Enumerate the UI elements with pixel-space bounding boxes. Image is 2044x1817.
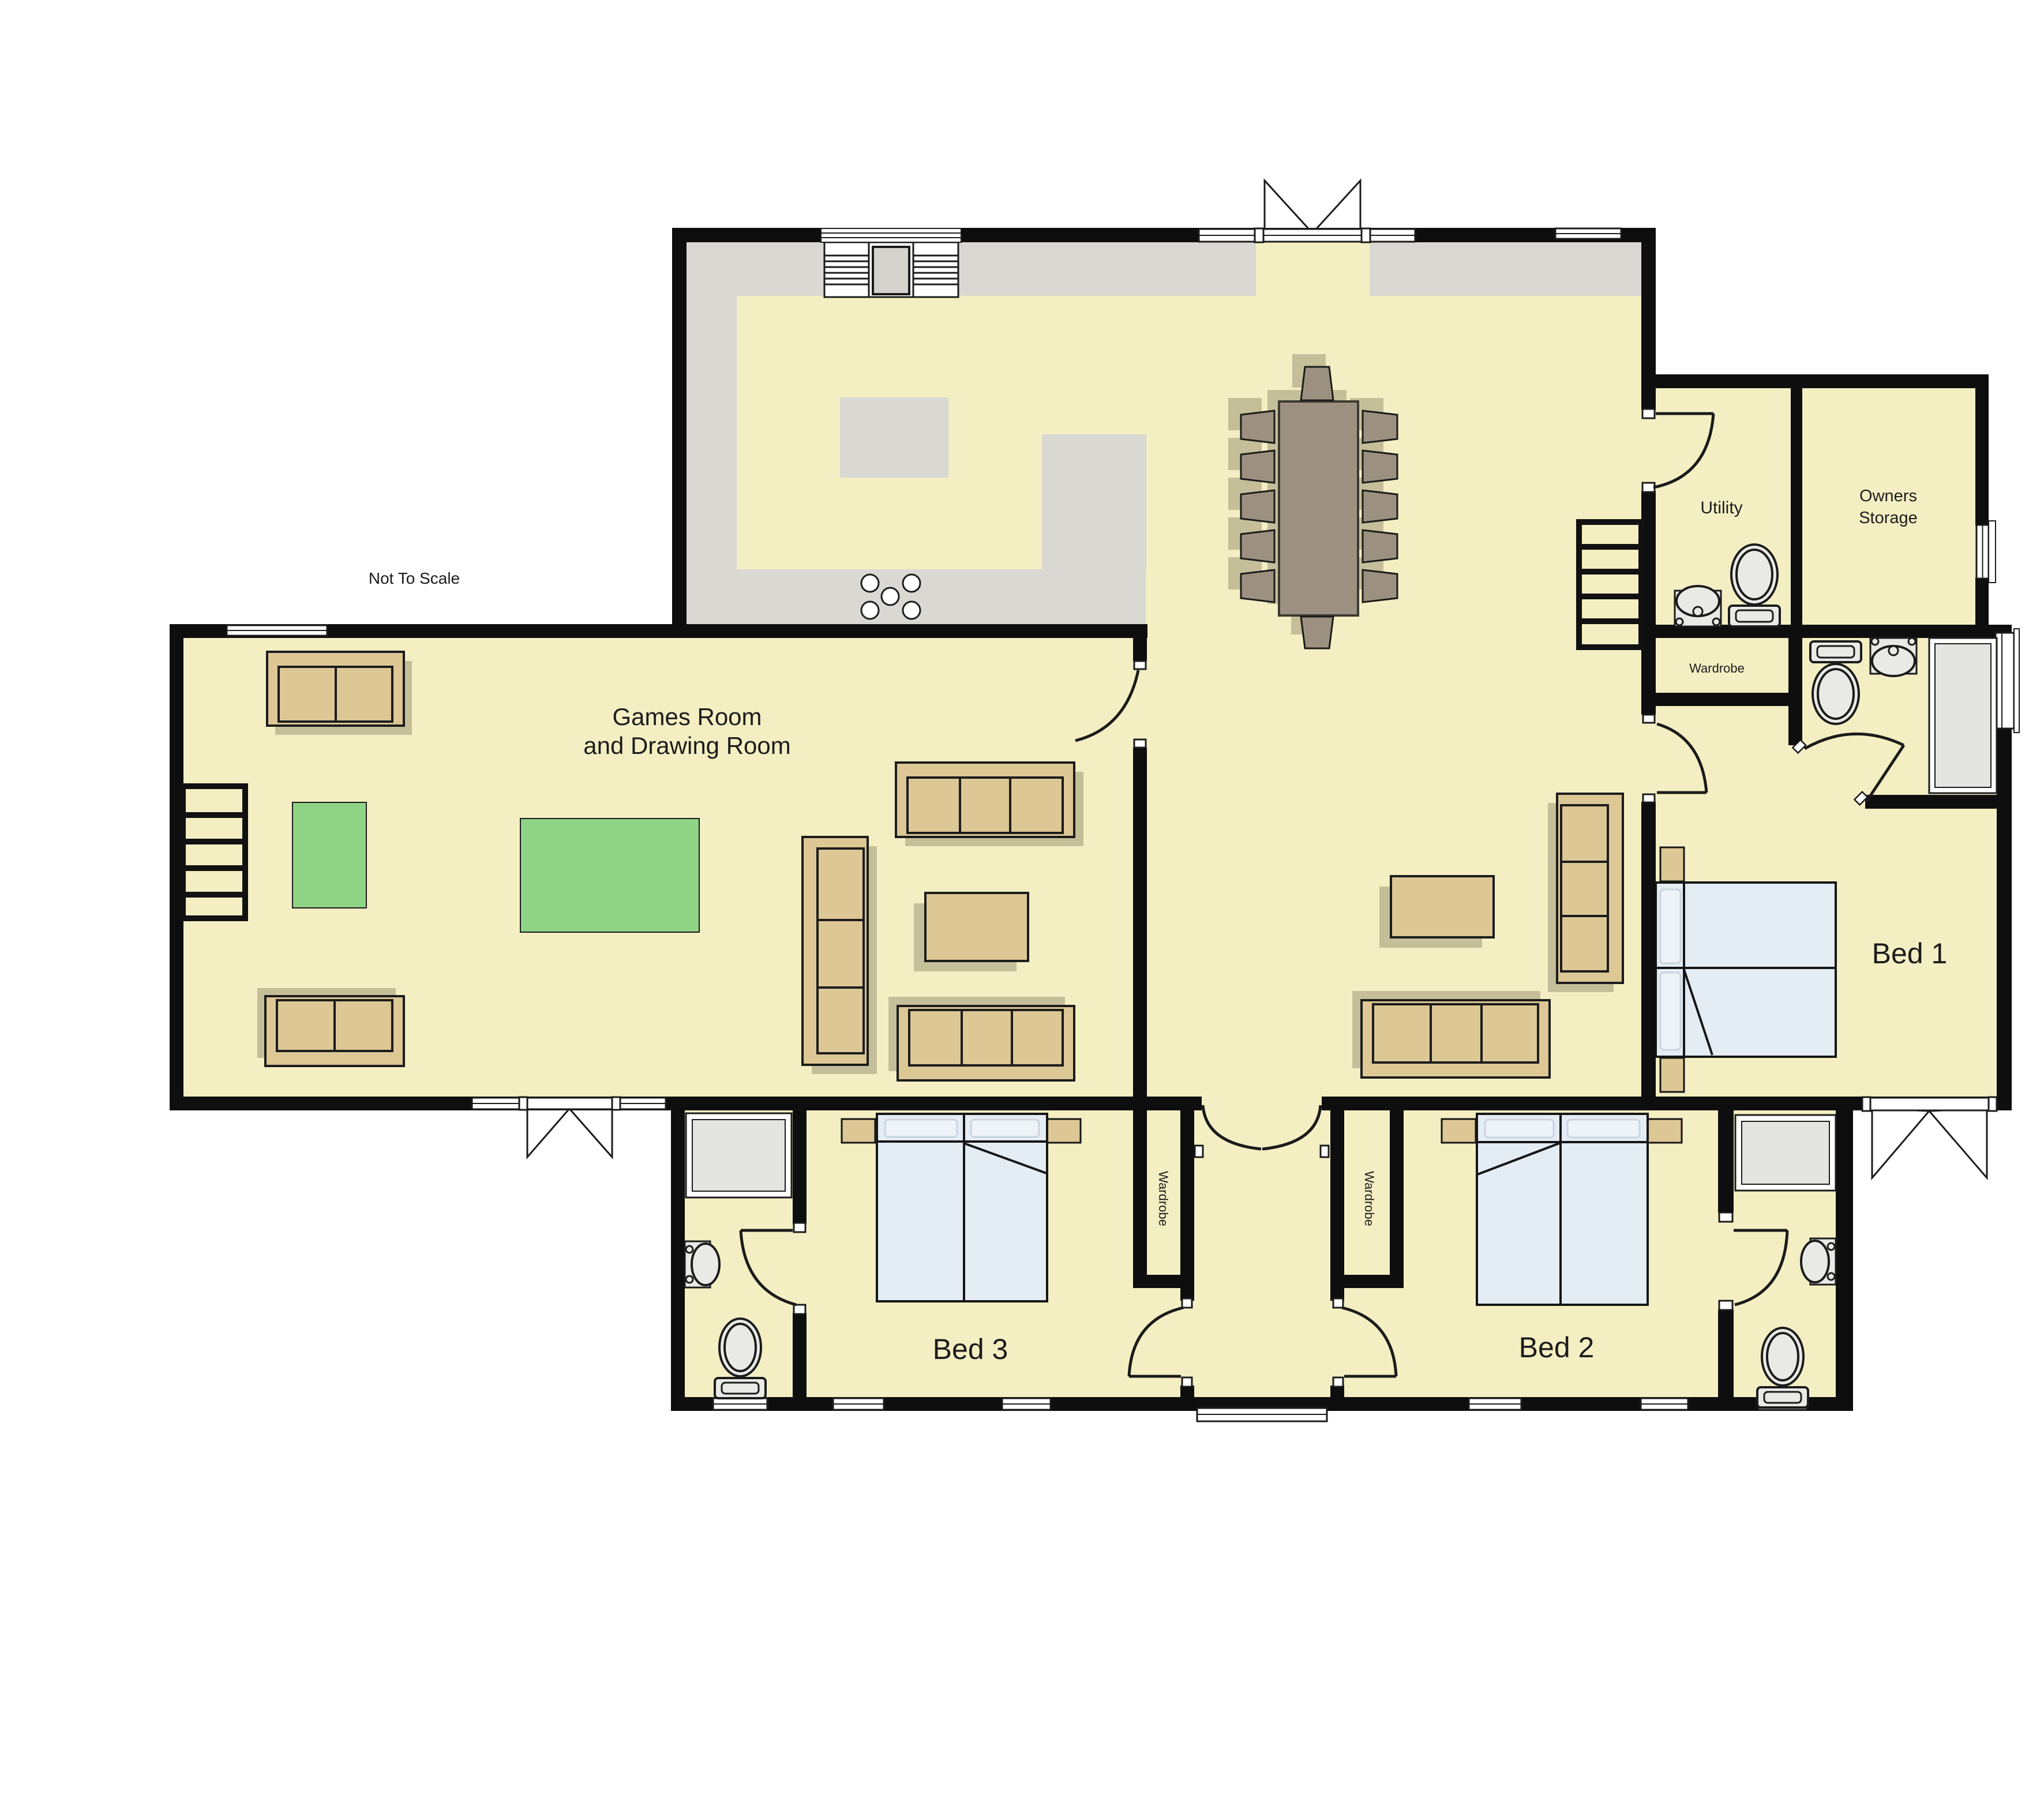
- svg-text:Wardrobe: Wardrobe: [1156, 1171, 1171, 1226]
- svg-text:Storage: Storage: [1859, 509, 1918, 527]
- svg-text:Wardrobe: Wardrobe: [1689, 661, 1745, 675]
- svg-text:and Drawing Room: and Drawing Room: [583, 732, 791, 759]
- svg-text:Bed 2: Bed 2: [1519, 1331, 1595, 1364]
- svg-text:Bed 1: Bed 1: [1872, 937, 1948, 970]
- svg-text:Not To Scale: Not To Scale: [369, 569, 460, 587]
- svg-text:Owners: Owners: [1859, 487, 1917, 505]
- svg-text:Utility: Utility: [1700, 498, 1742, 517]
- svg-text:Wardrobe: Wardrobe: [1362, 1171, 1377, 1226]
- svg-text:Bed 3: Bed 3: [933, 1333, 1008, 1365]
- svg-text:Games Room: Games Room: [612, 703, 762, 730]
